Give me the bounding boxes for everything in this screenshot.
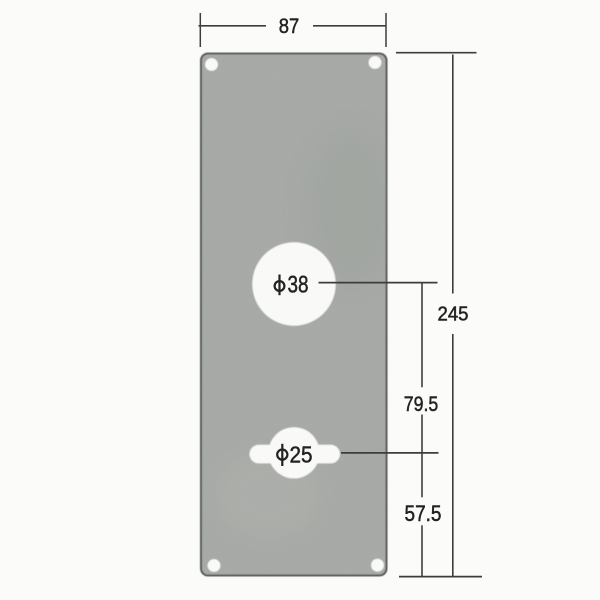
svg-text:57.5: 57.5 [405,501,442,526]
svg-text:79.5: 79.5 [404,393,439,416]
svg-text:38: 38 [288,271,309,298]
svg-text:87: 87 [279,14,300,38]
svg-text:245: 245 [438,304,469,326]
svg-text:25: 25 [290,441,313,467]
